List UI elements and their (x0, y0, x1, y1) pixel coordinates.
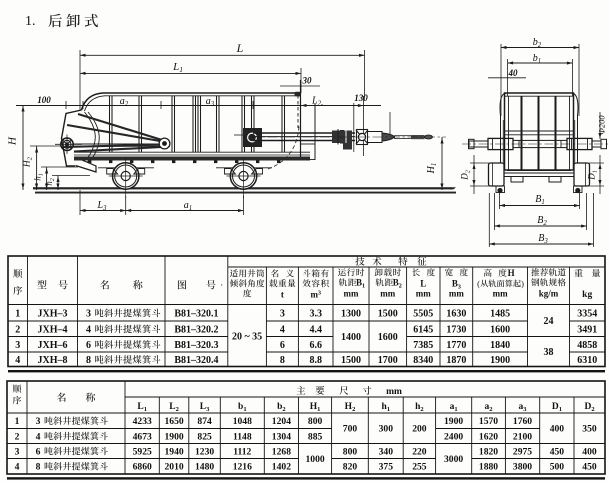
svg-text:3800: 3800 (513, 462, 532, 473)
svg-text:1940: 1940 (165, 446, 184, 457)
svg-text:B81–320.2: B81–320.2 (174, 324, 218, 335)
svg-text:20 ~ 35: 20 ~ 35 (232, 332, 262, 343)
svg-text:400: 400 (582, 446, 597, 457)
svg-text:300: 300 (379, 424, 394, 435)
svg-text:350: 350 (582, 424, 597, 435)
svg-text:1230: 1230 (195, 446, 214, 457)
svg-text:B81–320.1: B81–320.1 (174, 308, 218, 319)
svg-text:1.: 1. (25, 14, 36, 29)
svg-text:JXH–6: JXH–6 (38, 340, 68, 351)
svg-text:kg/m: kg/m (539, 289, 559, 299)
svg-text:340: 340 (379, 446, 394, 457)
svg-text:): ) (521, 278, 524, 288)
svg-text:3: 3 (15, 446, 20, 457)
svg-text:3354: 3354 (577, 308, 597, 319)
svg-text:6: 6 (280, 340, 285, 351)
svg-text:1: 1 (15, 416, 20, 427)
svg-text:375: 375 (379, 462, 394, 473)
svg-text:B81–320.4: B81–320.4 (174, 355, 218, 366)
svg-text:1620: 1620 (479, 431, 498, 442)
svg-text:1400: 1400 (341, 332, 361, 343)
svg-text:8340: 8340 (413, 355, 433, 366)
svg-text:3: 3 (36, 416, 41, 427)
svg-text:1300: 1300 (341, 308, 361, 319)
svg-text:220: 220 (412, 446, 427, 457)
svg-text:8: 8 (36, 462, 41, 473)
svg-text:820: 820 (343, 462, 358, 473)
svg-text:1840: 1840 (490, 340, 510, 351)
svg-text:874: 874 (197, 416, 212, 427)
svg-text:700: 700 (343, 424, 358, 435)
svg-text:3.3: 3.3 (309, 308, 322, 319)
svg-text:2975: 2975 (513, 446, 532, 457)
svg-text:3: 3 (86, 308, 91, 319)
svg-text:1630: 1630 (446, 308, 466, 319)
svg-text:JXH–4: JXH–4 (38, 324, 68, 335)
svg-text:6: 6 (86, 340, 91, 351)
svg-text:1216: 1216 (233, 462, 252, 473)
svg-text:5505: 5505 (413, 308, 433, 319)
svg-text:4.4: 4.4 (309, 324, 322, 335)
svg-text:30: 30 (302, 76, 313, 86)
svg-text:7385: 7385 (413, 340, 433, 351)
svg-text:1730: 1730 (446, 324, 466, 335)
svg-text:mm: mm (493, 289, 508, 299)
svg-text:8.8: 8.8 (309, 355, 322, 366)
svg-text:1148: 1148 (233, 431, 252, 442)
svg-text:1650: 1650 (165, 416, 184, 427)
svg-text:2010: 2010 (165, 462, 184, 473)
svg-text:4: 4 (15, 462, 20, 473)
svg-text:1900: 1900 (165, 431, 184, 442)
svg-text:JXH–3: JXH–3 (38, 308, 68, 319)
svg-text:800: 800 (343, 446, 358, 457)
svg-text:1000: 1000 (306, 454, 325, 465)
svg-text:4: 4 (280, 324, 285, 335)
svg-text:4233: 4233 (133, 416, 152, 427)
svg-text:1: 1 (15, 308, 20, 319)
svg-text:1900: 1900 (444, 416, 463, 427)
svg-text:mm: mm (344, 289, 359, 299)
svg-text:6.6: 6.6 (309, 340, 322, 351)
svg-text:1112: 1112 (233, 446, 251, 457)
svg-text:2100: 2100 (513, 431, 532, 442)
svg-text:24: 24 (544, 316, 554, 327)
svg-text:kg: kg (582, 290, 592, 300)
svg-text:1500: 1500 (341, 355, 361, 366)
svg-text:1700: 1700 (378, 355, 398, 366)
svg-text:1402: 1402 (272, 462, 291, 473)
svg-text:1500: 1500 (378, 308, 398, 319)
svg-text:H: H (7, 136, 19, 146)
svg-text:800: 800 (308, 416, 323, 427)
svg-text:Φ200: Φ200 (597, 115, 607, 135)
svg-text:40: 40 (508, 68, 519, 78)
svg-text:1600: 1600 (378, 332, 398, 343)
svg-text:4: 4 (36, 431, 41, 442)
svg-text:mm: mm (416, 289, 431, 299)
svg-text:L: L (236, 41, 244, 55)
svg-text:1480: 1480 (195, 462, 214, 473)
svg-text:2400: 2400 (444, 431, 463, 442)
svg-text:38: 38 (544, 347, 554, 358)
svg-text:1880: 1880 (479, 462, 498, 473)
svg-text:(: ( (477, 278, 480, 288)
svg-text:1570: 1570 (479, 416, 498, 427)
svg-text:500: 500 (550, 462, 565, 473)
svg-text:4858: 4858 (577, 340, 597, 351)
svg-text:1600: 1600 (490, 324, 510, 335)
svg-text:130: 130 (354, 93, 368, 103)
svg-text:1820: 1820 (479, 446, 498, 457)
svg-text:450: 450 (582, 462, 597, 473)
svg-text:3000: 3000 (444, 454, 463, 465)
svg-text:1770: 1770 (446, 340, 466, 351)
svg-text:3491: 3491 (577, 324, 597, 335)
svg-text:4: 4 (86, 324, 91, 335)
svg-text:JXH–8: JXH–8 (38, 355, 68, 366)
svg-text:B81–320.3: B81–320.3 (174, 340, 218, 351)
svg-text:1268: 1268 (272, 446, 291, 457)
svg-text:6: 6 (36, 446, 41, 457)
svg-text:885: 885 (308, 431, 323, 442)
svg-text:4: 4 (15, 355, 20, 366)
svg-text:5925: 5925 (133, 446, 152, 457)
svg-text:1204: 1204 (272, 416, 291, 427)
svg-text:1485: 1485 (490, 308, 510, 319)
svg-text:1900: 1900 (490, 355, 510, 366)
svg-text:H: H (508, 268, 515, 278)
svg-text:mm: mm (449, 289, 464, 299)
svg-text:6145: 6145 (413, 324, 433, 335)
svg-text:255: 255 (412, 462, 427, 473)
svg-text:6860: 6860 (133, 462, 152, 473)
svg-text:8: 8 (280, 355, 285, 366)
svg-text:mm: mm (380, 289, 395, 299)
svg-text:mm: mm (386, 387, 402, 397)
svg-text:825: 825 (197, 431, 212, 442)
svg-text:3: 3 (280, 308, 285, 319)
svg-text:1760: 1760 (513, 416, 532, 427)
svg-text:4673: 4673 (133, 431, 152, 442)
svg-text:L: L (420, 279, 426, 289)
svg-text:200: 200 (412, 424, 427, 435)
svg-text:2: 2 (15, 324, 20, 335)
svg-text:450: 450 (550, 446, 565, 457)
svg-text:8: 8 (86, 355, 91, 366)
svg-text:t: t (281, 290, 284, 300)
svg-text:6310: 6310 (577, 355, 597, 366)
svg-text:1870: 1870 (446, 355, 466, 366)
svg-text:3: 3 (15, 340, 20, 351)
svg-text:2: 2 (15, 431, 20, 442)
svg-text:400: 400 (550, 424, 565, 435)
svg-text:100: 100 (37, 95, 51, 105)
svg-text:·: · (220, 280, 223, 290)
svg-text:1048: 1048 (233, 416, 252, 427)
svg-text:1304: 1304 (272, 431, 291, 442)
